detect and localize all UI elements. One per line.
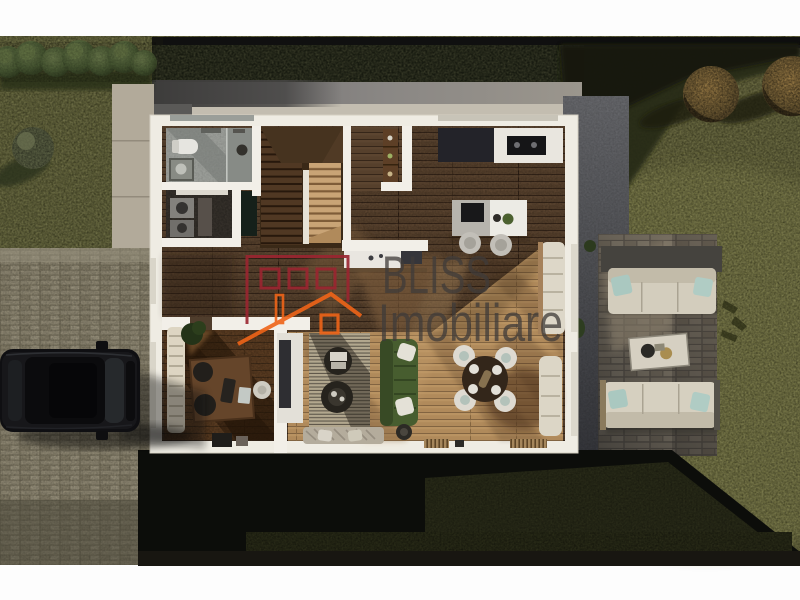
- svg-text:Imobiliare: Imobiliare: [378, 294, 563, 353]
